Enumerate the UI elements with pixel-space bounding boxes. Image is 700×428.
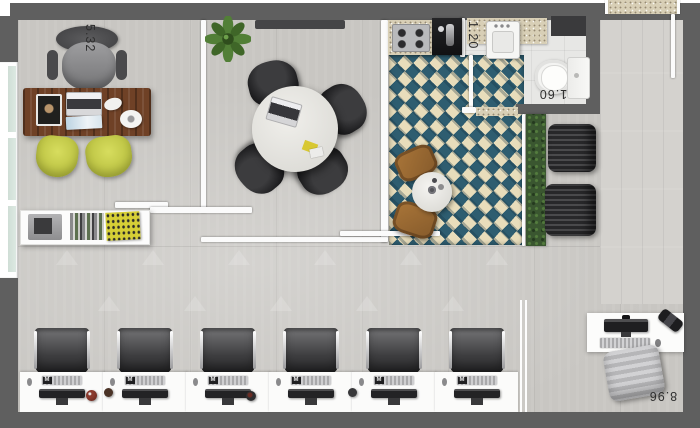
floor-watermark-triangle (356, 296, 378, 311)
chair-armrest (47, 50, 58, 80)
keyboard: M (208, 376, 248, 385)
desk-tray (36, 94, 62, 126)
chair-armrest (116, 50, 127, 80)
floor-watermark-triangle (184, 296, 206, 311)
mouse (193, 378, 198, 386)
floor-grout-line (18, 246, 600, 247)
cup (438, 184, 444, 190)
monitor-stand (56, 398, 68, 405)
wall-right (683, 3, 700, 428)
workstation-desk: M (269, 372, 353, 412)
office-chair (35, 328, 89, 374)
book-stack (70, 213, 104, 240)
bathroom-wall-stub (462, 107, 476, 113)
entry-door-threshold (608, 0, 677, 14)
monitor (205, 389, 251, 398)
wall-left-lower (0, 278, 18, 414)
plate (120, 110, 142, 128)
entry-door-jamb (605, 0, 608, 14)
monitor-stand (471, 398, 483, 405)
bottle (446, 24, 454, 46)
keyboard-badge: M (126, 377, 135, 384)
meeting-room-south-wall (201, 237, 388, 242)
office-sliding-door-panel (150, 207, 252, 213)
jar (438, 26, 444, 32)
bathroom-door-threshold (476, 107, 518, 116)
keyboard: M (291, 376, 331, 385)
monitor (288, 389, 334, 398)
bathroom-west-wall (469, 55, 473, 113)
monitor (454, 389, 500, 398)
cooktop-stove (392, 24, 430, 52)
meeting-room-east-wall (381, 20, 388, 242)
yellow-binders (105, 211, 140, 241)
floor-watermark-triangle (98, 296, 120, 311)
wall-bathroom-south (516, 104, 600, 114)
workstation: M (352, 328, 435, 412)
laptop (66, 92, 102, 116)
office-chair (201, 328, 255, 374)
magazine (66, 115, 103, 130)
hedge-planter (526, 114, 546, 246)
floor-watermark-triangle (142, 250, 164, 265)
floor-watermark-triangle (486, 250, 508, 265)
mouse (276, 378, 281, 386)
keyboard-badge: M (375, 377, 384, 384)
wall-left-upper (0, 16, 18, 62)
dimension-label-bottom: 8.96 (636, 389, 690, 403)
wall-niche (551, 16, 586, 36)
cup (428, 186, 436, 194)
office-chair (284, 328, 338, 374)
printer-screen (34, 218, 52, 234)
floor-watermark-triangle (442, 296, 464, 311)
office-chair (367, 328, 421, 374)
meeting-round-table (252, 86, 338, 172)
keyboard-badge: M (209, 377, 218, 384)
keyboard: M (42, 376, 82, 385)
mouse (359, 378, 364, 386)
workstation: M (435, 328, 518, 412)
monitor-stand (621, 332, 631, 337)
entry-door-jamb (677, 0, 680, 14)
cup (432, 178, 437, 183)
keyboard: M (125, 376, 165, 385)
office-chair (118, 328, 172, 374)
mouse (27, 378, 32, 386)
dimension-label-left: 5.32 (83, 24, 97, 52)
monitor (371, 389, 417, 398)
monitor-stand (222, 398, 234, 405)
keyboard-badge: M (292, 377, 301, 384)
dimension-label-bath-depth: 1.60 (527, 87, 579, 101)
workstation: M (186, 328, 269, 412)
potted-plant (205, 16, 251, 62)
floor-watermark-triangle (56, 250, 78, 265)
wall-bottom (0, 412, 700, 428)
floor-watermark-triangle (400, 250, 422, 265)
workstation-desk: M (186, 372, 270, 412)
floor-accessory (246, 391, 256, 401)
glass-partition-stub (520, 300, 527, 412)
window-pane (8, 66, 16, 132)
monitor-stand (305, 398, 317, 405)
wall-tv (255, 20, 345, 29)
sink-basin (492, 31, 514, 53)
floor-watermark-triangle (314, 250, 336, 265)
monitor-stand (139, 398, 151, 405)
floor-accessory (86, 390, 97, 401)
floor-watermark-triangle (228, 250, 250, 265)
mouse (110, 378, 115, 386)
keyboard: M (374, 376, 414, 385)
window-pane (8, 206, 16, 272)
mouse (442, 378, 447, 386)
mouse (655, 339, 661, 347)
floor-accessory (348, 388, 357, 397)
hedge-planter-edge (522, 114, 525, 246)
floor-watermark-triangle (270, 296, 292, 311)
faucet (494, 24, 510, 28)
workstation-desk: M (435, 372, 518, 412)
keyboard-badge: M (458, 377, 467, 384)
corridor-wall-cap (671, 14, 675, 78)
keyboard-badge: M (43, 377, 52, 384)
workstation-desk: M (352, 372, 436, 412)
floor-watermark-row (98, 296, 464, 311)
office-chair (450, 328, 504, 374)
window-left (0, 62, 18, 278)
lounge-armchair (545, 184, 596, 236)
workstation-desk: M (103, 372, 187, 412)
monitor-stand (388, 398, 400, 405)
workstation: M (269, 328, 352, 412)
floor-watermark-row (56, 250, 508, 265)
keyboard: M (457, 376, 497, 385)
workstation: M (103, 328, 186, 412)
window-pane (8, 138, 16, 200)
monitor (604, 319, 648, 332)
floor-accessory (104, 388, 113, 397)
dimension-label-bath-width: 1.20 (466, 21, 480, 49)
lounge-armchair (548, 124, 596, 172)
monitor (122, 389, 168, 398)
floor-plan: M M M (0, 0, 700, 428)
monitor (39, 389, 85, 398)
toilet-flush-button (574, 73, 579, 78)
